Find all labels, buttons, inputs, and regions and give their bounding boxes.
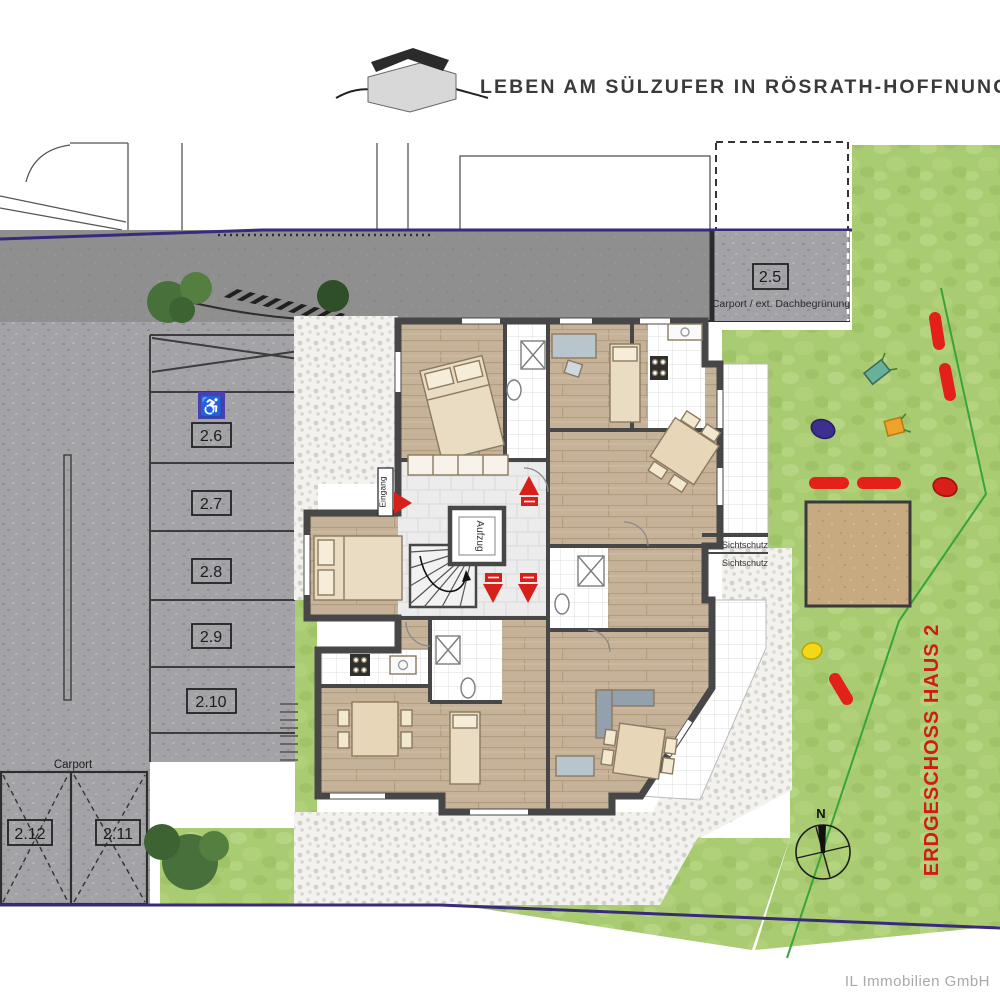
desk-south [556,756,594,776]
carport-stall-2-5: 2.5 Carport / ext. Dachbegrünung [712,231,850,321]
stall-2-10-label: 2.10 [195,694,226,711]
sandbox [806,502,910,606]
page-title: LEBEN AM SÜLZUFER IN RÖSRATH-HOFFNUNGSTH… [480,75,1000,98]
bed-double-west [314,536,402,600]
stall-2-7-label: 2.7 [200,496,222,513]
site-plan-page: 2.5 Carport / ext. Dachbegrünung ♿ 2 [0,0,1000,1000]
lawn-strip-west [295,598,317,814]
stall-2-8-label: 2.8 [200,564,222,581]
compass-north-label: N [816,806,825,821]
desk-ne [552,334,596,358]
company-credit: IL Immobilien GmbH [845,973,990,990]
privacy-label-1: Sichtschutz [722,540,769,550]
carport-roof-dashed-outline [716,142,848,230]
privacy-label-2: Sichtschutz [722,558,769,568]
carport-2-5-note: Carport / ext. Dachbegrünung [712,298,850,310]
stall-2-12-label: 2.12 [14,826,45,843]
wheelchair-glyph: ♿ [200,395,224,418]
street: 2.5 Carport / ext. Dachbegrünung [0,230,852,323]
stall-2-5-label: 2.5 [759,269,781,286]
accessible-parking-icon-group: ♿ [198,392,225,419]
entrance-label: Eingang [378,476,388,507]
site-plan-drawing: 2.5 Carport / ext. Dachbegrünung ♿ 2 [0,0,1000,1000]
shrub-driveway [317,280,349,312]
elevator-label: Aufzug [474,520,485,551]
floor-label: ERDGESCHOSS HAUS 2 [921,624,943,877]
stall-2-9-label: 2.9 [200,629,222,646]
carport-label: Carport [54,759,93,771]
stall-2-6-label: 2.6 [200,428,222,445]
carport-southwest: Carport 2.12 2.11 [0,759,148,905]
stall-2-11-label: 2.11 [103,826,133,843]
